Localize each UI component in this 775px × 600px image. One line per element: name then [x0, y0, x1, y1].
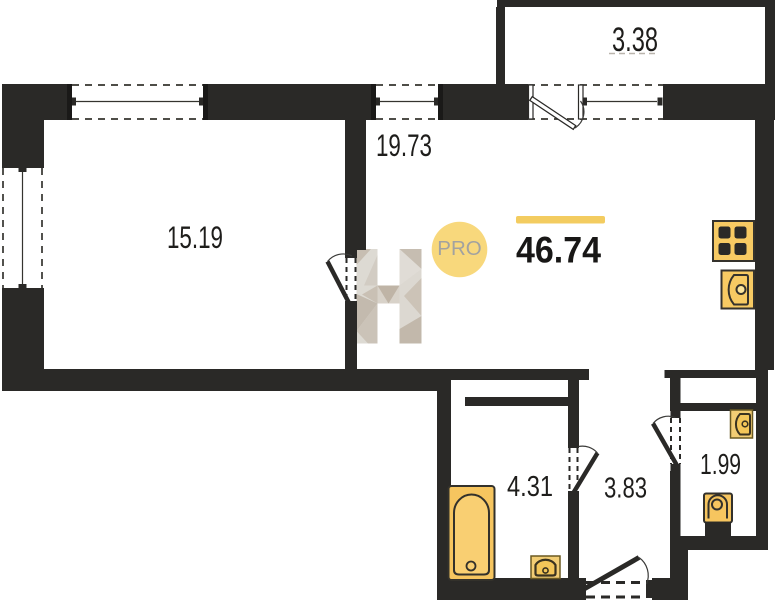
svg-text:4.31: 4.31 [507, 470, 553, 503]
svg-text:19.73: 19.73 [376, 127, 432, 163]
svg-text:1.99: 1.99 [700, 449, 741, 481]
svg-text:3.83: 3.83 [604, 473, 647, 504]
svg-text:PRO: PRO [437, 237, 481, 260]
svg-text:46.74: 46.74 [516, 229, 601, 271]
svg-text:15.19: 15.19 [167, 219, 223, 255]
